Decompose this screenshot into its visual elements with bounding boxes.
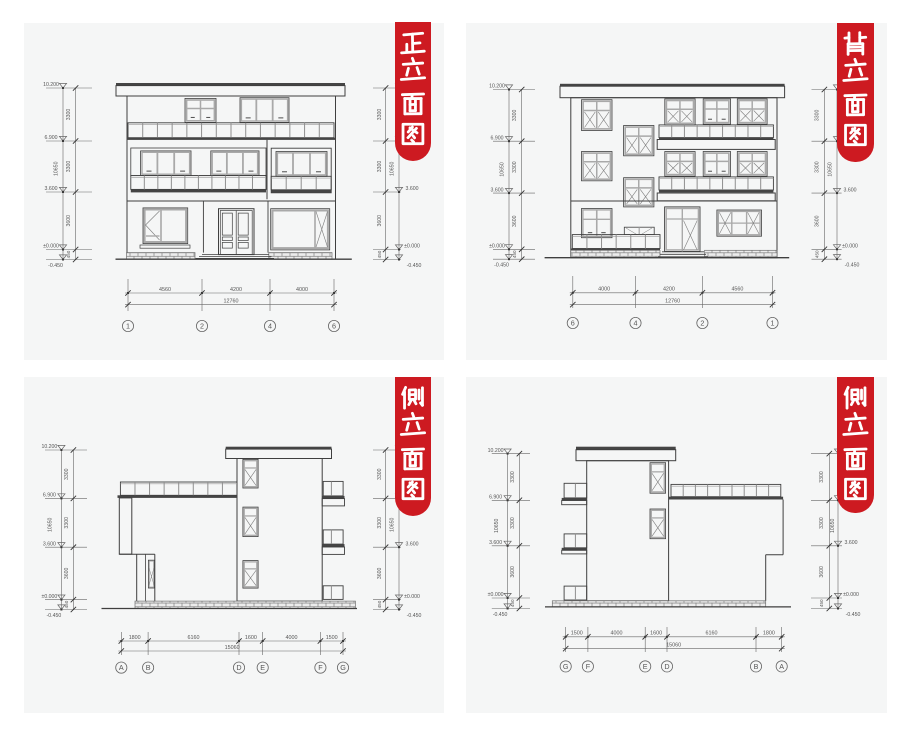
svg-text:3300: 3300 [512,109,518,121]
svg-text:3.600: 3.600 [406,541,419,547]
svg-text:E: E [260,663,265,672]
svg-text:450: 450 [814,250,819,258]
svg-text:3.600: 3.600 [844,187,857,193]
svg-text:4000: 4000 [286,635,298,641]
svg-text:6.900: 6.900 [45,135,58,141]
svg-text:15060: 15060 [666,642,681,648]
svg-text:10650: 10650 [828,162,834,177]
svg-text:10650: 10650 [500,162,506,177]
svg-text:3300: 3300 [377,161,383,173]
svg-text:450: 450 [510,599,515,607]
svg-text:12760: 12760 [665,298,680,304]
svg-text:F: F [586,662,591,671]
svg-text:-0.450: -0.450 [494,263,509,269]
svg-text:450: 450 [512,250,517,258]
svg-text:10650: 10650 [389,517,395,532]
svg-text:3300: 3300 [377,109,383,121]
svg-text:-0.450: -0.450 [845,263,860,269]
svg-text:4000: 4000 [296,287,308,293]
svg-text:F: F [318,663,323,672]
svg-text:3600: 3600 [510,566,516,578]
svg-text:3300: 3300 [819,517,825,529]
svg-text:1800: 1800 [129,635,141,641]
svg-text:450: 450 [377,250,382,258]
svg-text:-0.450: -0.450 [846,612,861,618]
svg-text:1600: 1600 [245,635,257,641]
svg-text:1500: 1500 [571,631,583,637]
svg-text:-0.450: -0.450 [493,612,508,618]
svg-text:10650: 10650 [830,518,836,533]
svg-text:±0.000: ±0.000 [488,592,504,598]
svg-text:6160: 6160 [706,631,718,637]
svg-text:4200: 4200 [663,287,675,293]
svg-text:3300: 3300 [819,471,825,483]
svg-text:±0.000: ±0.000 [489,244,505,250]
svg-text:B: B [754,662,759,671]
svg-text:3.600: 3.600 [491,187,504,193]
svg-text:3300: 3300 [814,109,820,121]
svg-text:12760: 12760 [224,298,239,304]
svg-text:±0.000: ±0.000 [41,594,57,600]
svg-text:A: A [119,663,124,672]
svg-text:3300: 3300 [66,161,72,173]
svg-text:3.600: 3.600 [406,186,419,192]
svg-text:±0.000: ±0.000 [404,244,420,250]
svg-text:-0.450: -0.450 [407,263,422,269]
svg-text:15060: 15060 [225,645,240,651]
svg-text:4000: 4000 [611,631,623,637]
svg-text:1600: 1600 [650,631,662,637]
svg-text:6160: 6160 [188,635,200,641]
svg-text:6.900: 6.900 [489,495,502,501]
svg-text:3.600: 3.600 [845,540,858,546]
svg-text:-0.450: -0.450 [47,613,62,619]
svg-text:3300: 3300 [510,471,516,483]
svg-text:10650: 10650 [494,518,500,533]
svg-text:10650: 10650 [47,517,53,532]
svg-text:4560: 4560 [159,287,171,293]
svg-text:3300: 3300 [66,109,72,121]
svg-text:±0.000: ±0.000 [404,594,420,600]
svg-text:1: 1 [126,322,130,331]
svg-text:D: D [236,663,241,672]
svg-text:1800: 1800 [763,631,775,637]
svg-text:G: G [340,663,346,672]
svg-text:±0.000: ±0.000 [43,244,59,250]
svg-text:3600: 3600 [512,215,518,227]
svg-text:±0.000: ±0.000 [842,244,858,250]
svg-text:6: 6 [571,319,575,328]
svg-text:10.200: 10.200 [489,84,505,90]
svg-text:D: D [664,662,669,671]
svg-text:4000: 4000 [598,287,610,293]
svg-text:E: E [643,662,648,671]
svg-text:3300: 3300 [64,468,70,480]
svg-text:3300: 3300 [814,161,820,173]
svg-text:10.200: 10.200 [41,444,57,450]
svg-text:3300: 3300 [512,161,518,173]
svg-text:3600: 3600 [66,215,72,227]
svg-text:3.600: 3.600 [489,540,502,546]
svg-text:3600: 3600 [814,215,820,227]
svg-text:-0.450: -0.450 [407,613,422,619]
svg-text:4560: 4560 [731,287,743,293]
svg-text:4: 4 [268,322,272,331]
svg-text:3600: 3600 [377,568,383,580]
svg-text:3300: 3300 [510,517,516,529]
svg-text:4: 4 [634,319,638,328]
svg-text:6.900: 6.900 [491,135,504,141]
svg-text:2: 2 [700,319,704,328]
svg-text:4200: 4200 [230,287,242,293]
svg-text:3300: 3300 [377,517,383,529]
svg-text:10650: 10650 [389,161,395,176]
svg-text:6.900: 6.900 [43,493,56,499]
svg-text:1500: 1500 [326,635,338,641]
svg-text:A: A [779,662,784,671]
svg-text:3.600: 3.600 [45,186,58,192]
svg-text:450: 450 [64,600,69,608]
svg-text:G: G [563,662,569,671]
svg-text:3600: 3600 [377,215,383,227]
svg-text:450: 450 [66,250,71,258]
svg-text:450: 450 [819,599,824,607]
svg-text:10.200: 10.200 [43,82,59,88]
svg-text:3600: 3600 [819,566,825,578]
svg-text:10.200: 10.200 [488,448,504,454]
svg-text:B: B [146,663,151,672]
svg-text:±0.000: ±0.000 [843,592,859,598]
svg-text:3.600: 3.600 [43,541,56,547]
svg-text:-0.450: -0.450 [48,263,63,269]
svg-text:6: 6 [332,322,336,331]
svg-text:1: 1 [771,319,775,328]
svg-text:450: 450 [377,600,382,608]
svg-text:3300: 3300 [377,468,383,480]
svg-text:3300: 3300 [64,517,70,529]
svg-text:2: 2 [200,322,204,331]
svg-text:3600: 3600 [64,568,70,580]
svg-text:10650: 10650 [54,161,60,176]
